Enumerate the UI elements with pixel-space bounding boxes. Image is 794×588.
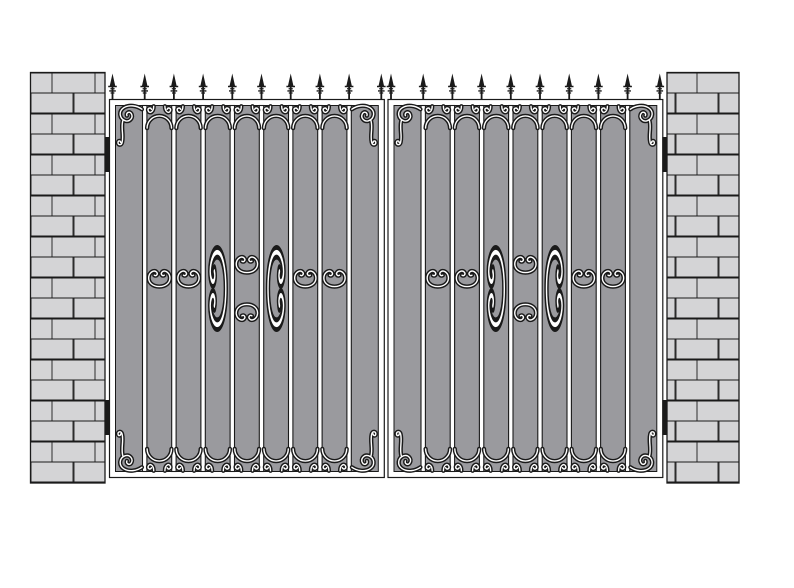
right-gate-leaf xyxy=(387,74,668,478)
left-gate-leaf xyxy=(105,74,386,478)
left-brick-pillar xyxy=(31,73,106,484)
illustration-canvas: Technical line illustration of a double … xyxy=(0,0,794,588)
right-brick-pillar xyxy=(667,73,739,484)
gate-illustration xyxy=(0,0,794,588)
